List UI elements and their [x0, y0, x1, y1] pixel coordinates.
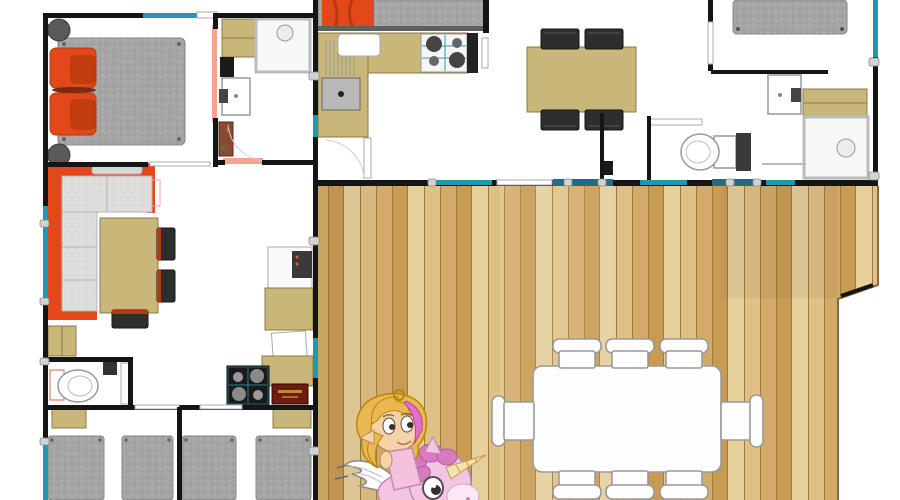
gas-hob-right [421, 34, 467, 72]
wc-door-right [649, 119, 702, 125]
outdoor-chair-top-3 [660, 339, 708, 368]
deck-white-door [497, 180, 552, 185]
floorplan-drawing [0, 0, 900, 500]
cistern [736, 133, 751, 171]
bed-top-left [318, 0, 486, 31]
deck-side-window [313, 338, 318, 378]
outdoor-chair-top-1 [553, 339, 601, 368]
unicorn-eye [423, 477, 443, 499]
bed-top-right [733, 0, 847, 34]
deck-shade-band-2 [724, 186, 838, 298]
low-cabinet [48, 326, 76, 356]
outdoor-chair-bottom-2 [606, 471, 654, 499]
kitchen-entry-door [364, 138, 371, 178]
twin-bedroom-door [200, 405, 242, 409]
single-bed [182, 436, 236, 500]
tall-cabinet [467, 33, 478, 73]
shower [256, 19, 310, 72]
shower-right [804, 117, 868, 178]
deck-glazing [433, 180, 492, 185]
cistern-box [103, 362, 117, 375]
wc-door [121, 363, 129, 404]
toilet-right [681, 133, 751, 171]
sliding-door-salmon [212, 25, 217, 122]
headboard-shelf [52, 408, 86, 428]
living-table [100, 218, 158, 313]
dining-table [527, 47, 636, 112]
twin-bedroom-door [135, 405, 179, 409]
fridge [268, 247, 312, 288]
gas-hob [227, 366, 269, 405]
bedroom-door [150, 162, 210, 166]
window-top-bedroom [143, 13, 197, 18]
deck-glazing [766, 180, 795, 185]
dining-chair [541, 29, 579, 49]
double-bed [50, 38, 185, 145]
outdoor-chair-right [721, 395, 763, 447]
deck-sliding-door [712, 179, 758, 186]
dining-chair [585, 29, 623, 49]
counter-appliance [338, 34, 380, 56]
plaque [272, 384, 308, 404]
outdoor-chair-bottom-3 [660, 471, 708, 499]
outdoor-table [533, 366, 721, 472]
water-heater [219, 122, 233, 156]
dining-chair [541, 110, 579, 130]
wardrobe-right [803, 89, 867, 117]
girl-arm [380, 451, 392, 469]
left-unit [40, 12, 318, 500]
bedroom-tl-door [482, 38, 488, 68]
faucet [219, 89, 228, 103]
kitchen-counter [265, 288, 313, 330]
bathroom-door-salmon [223, 158, 263, 164]
window-right-bedroom [873, 0, 878, 57]
faucet [791, 88, 801, 102]
single-bed [48, 436, 104, 500]
washbasin [219, 78, 250, 115]
toilet-left [50, 370, 98, 402]
headboard-shelf [273, 408, 311, 428]
side-chair [157, 228, 175, 260]
kitchen-sink [322, 78, 360, 110]
outdoor-chair-left [492, 396, 534, 446]
microwave [292, 251, 312, 278]
end-chair [112, 310, 148, 328]
outdoor-chair-bottom-1 [553, 471, 601, 499]
window-left-bedroom [43, 443, 48, 500]
side-chair [157, 270, 175, 302]
washbasin-right [768, 75, 801, 114]
worktop [262, 356, 313, 386]
black-appliance [220, 57, 234, 77]
deck-glazing [640, 180, 687, 185]
single-bed [122, 436, 173, 500]
outdoor-chair-top-2 [606, 339, 654, 368]
floorplan-canvas [0, 0, 900, 500]
single-bed [256, 436, 311, 500]
